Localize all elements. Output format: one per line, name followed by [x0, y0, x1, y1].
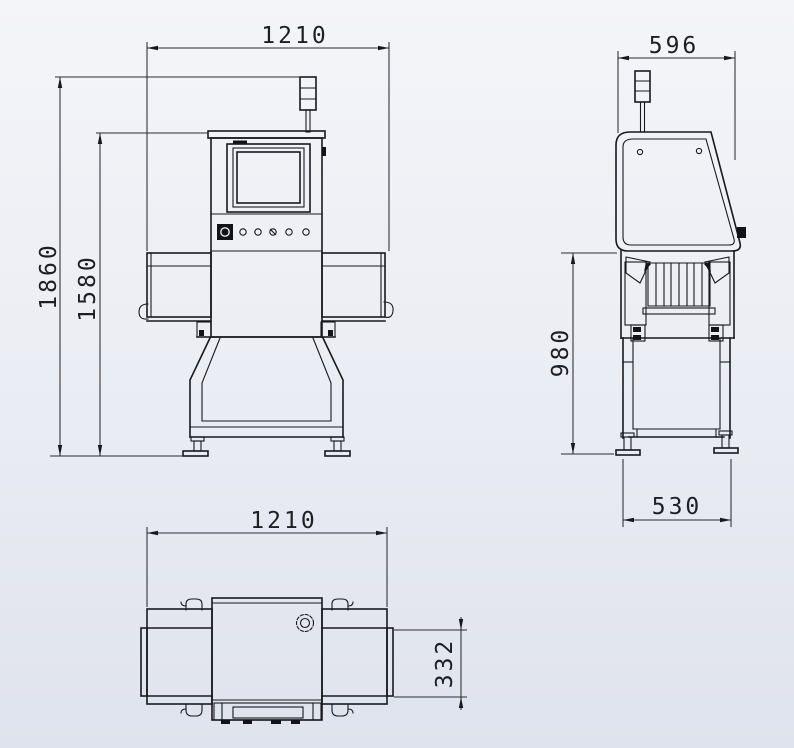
outfeed-conveyor	[322, 253, 393, 321]
screen	[237, 152, 300, 203]
machine-body-plan	[212, 598, 322, 724]
signal-tower-side	[635, 71, 650, 132]
key-switch	[322, 147, 326, 156]
support-legs	[190, 338, 343, 437]
control-panel	[211, 214, 322, 251]
touchscreen	[227, 141, 310, 213]
front-view	[139, 77, 393, 456]
side-view	[616, 71, 746, 455]
infeed-conveyor	[139, 253, 211, 321]
leg-frame-side	[623, 338, 730, 438]
dim-plan-belt-width: 332	[394, 617, 467, 710]
leg-mounts	[197, 322, 335, 337]
infeed-conveyor-plan	[141, 609, 212, 704]
dim-label-base-depth: 530	[652, 494, 703, 520]
dim-front-overall-width: 1210	[147, 23, 389, 251]
dim-side-frame-height: 980	[548, 253, 617, 454]
dim-label-side-depth: 596	[649, 33, 700, 59]
leveling-feet	[183, 437, 350, 456]
belt-roller	[643, 308, 715, 314]
dim-label-frame-height: 980	[548, 327, 574, 378]
dim-label-belt-width: 332	[432, 638, 458, 689]
dimension-drawing: 1210 1860 1580 596 980	[0, 0, 794, 748]
emergency-stop-button	[217, 224, 233, 240]
dim-label-machine-height: 1580	[75, 254, 101, 321]
logo-plate	[233, 141, 247, 144]
outfeed-conveyor-plan	[322, 609, 393, 704]
dim-label-plan-width: 1210	[250, 508, 317, 534]
dim-side-base-depth: 530	[623, 459, 731, 527]
xray-shield-curtain	[648, 263, 710, 306]
end-roller	[387, 628, 393, 696]
dim-label-front-height: 1860	[36, 242, 62, 309]
panel-buttons	[240, 229, 309, 235]
dim-plan-width: 1210	[147, 508, 387, 607]
top-view	[141, 598, 393, 724]
screw	[696, 148, 701, 153]
cabinet-side	[616, 132, 746, 251]
door-latch	[737, 227, 746, 238]
screw	[637, 149, 642, 154]
drawing-canvas: 1210 1860 1580 596 980	[0, 0, 794, 748]
signal-tower	[300, 77, 316, 132]
end-roller	[141, 628, 147, 696]
dim-label-front-width: 1210	[261, 23, 328, 49]
fan-vent	[297, 615, 314, 632]
tunnel-section	[621, 251, 734, 341]
corner-clamps	[181, 599, 353, 716]
dim-front-machine-height: 1580	[75, 133, 208, 456]
leveling-feet-side	[616, 431, 738, 455]
